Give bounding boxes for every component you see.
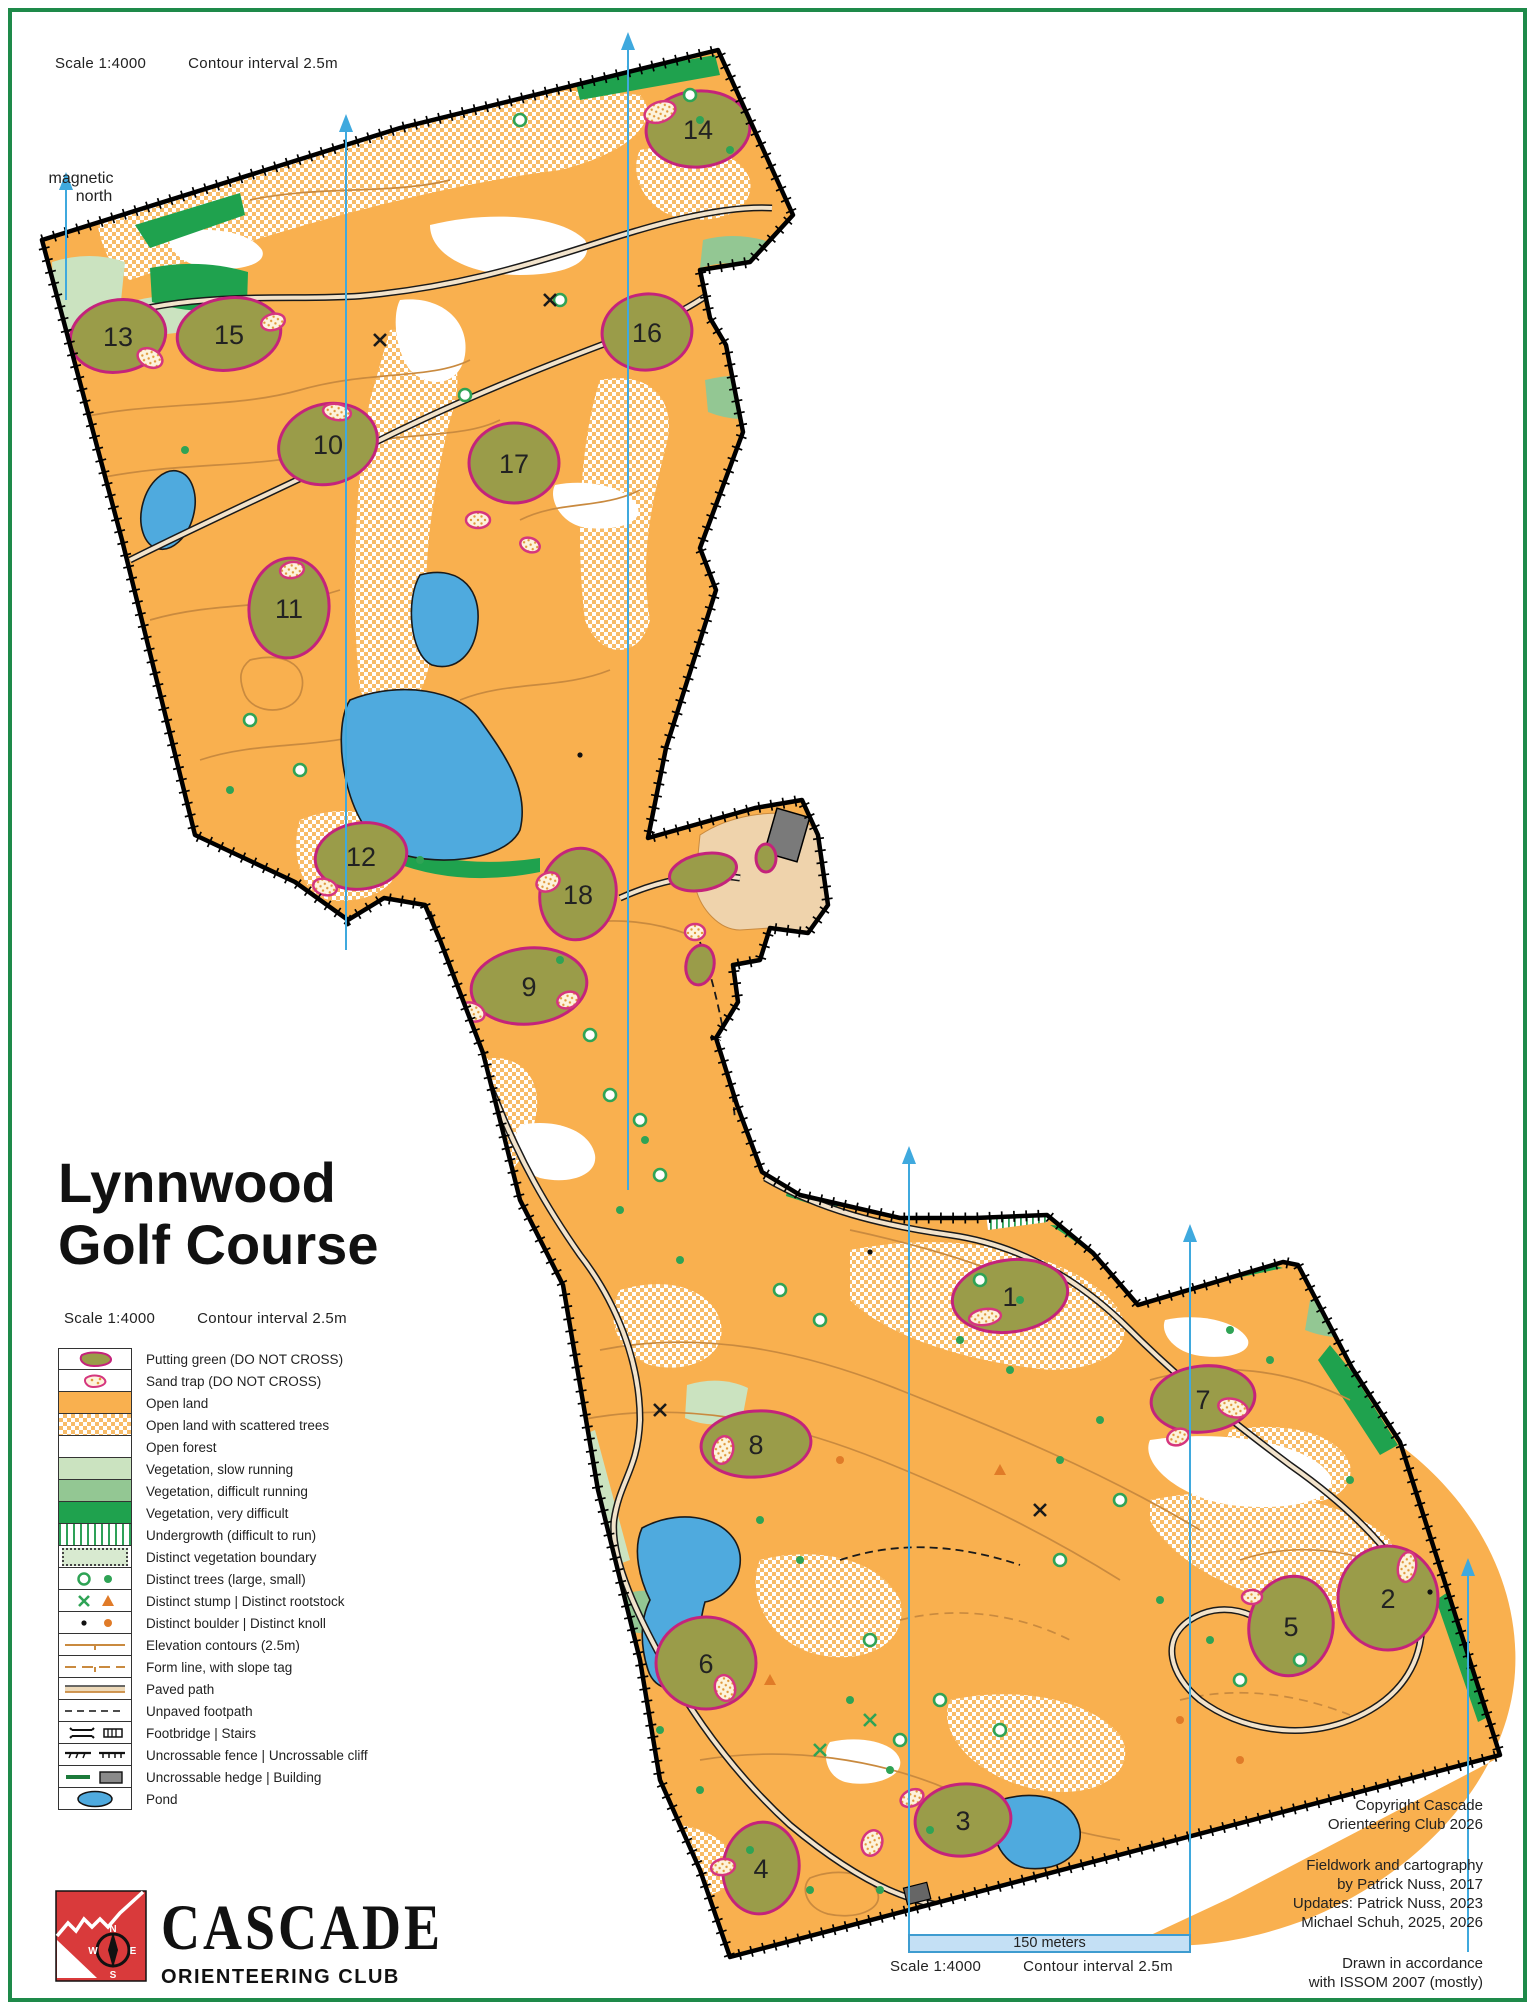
hole-number-8: 8 [748, 1430, 763, 1460]
legend-row-open-forest: Open forest [58, 1436, 368, 1458]
legend-row-veg-boundary: Distinct vegetation boundary [58, 1546, 368, 1568]
club-logo: N W E S CASCADE ORIENTEERING CLUB [55, 1890, 443, 1989]
hole-number-11: 11 [275, 594, 303, 624]
hole-number-18: 18 [563, 880, 593, 910]
credit-fieldwork-line2: by Patrick Nuss, 2017 [1183, 1875, 1483, 1894]
legend-row-form-line: Form line, with slope tag [58, 1656, 368, 1678]
hole-number-12: 12 [346, 842, 376, 872]
scale-text: Scale 1:4000 [55, 55, 146, 72]
scale-bar: 150 meters [908, 1934, 1191, 1953]
veg-very-difficult-swatch [58, 1502, 132, 1524]
undergrowth-swatch [58, 1524, 132, 1546]
legend-row-veg-slow: Vegetation, slow running [58, 1458, 368, 1480]
legend-row-hedge-building: Uncrossable hedge | Building [58, 1766, 368, 1788]
magnetic-north-label: magnetic north [36, 170, 126, 206]
hole-number-4: 4 [753, 1854, 768, 1884]
paved-path-swatch [58, 1678, 132, 1700]
contours-swatch [58, 1634, 132, 1656]
legend-row-stump-rootstock: Distinct stump | Distinct rootstock [58, 1590, 368, 1612]
legend-row-contours: Elevation contours (2.5m) [58, 1634, 368, 1656]
hole-number-6: 6 [698, 1649, 713, 1679]
club-logo-mark: N W E S [55, 1890, 147, 1982]
open-forest-swatch [58, 1436, 132, 1458]
contour-interval-text: Contour interval 2.5m [188, 55, 338, 72]
compass-s: S [110, 1970, 117, 1981]
practice-green [756, 844, 776, 872]
hole-number-5: 5 [1283, 1612, 1298, 1642]
scale-bar-label: 150 meters [1013, 1935, 1086, 1951]
legend-row-distinct-trees: Distinct trees (large, small) [58, 1568, 368, 1590]
footbridge-stairs-swatch [58, 1722, 132, 1744]
legend-row-scattered-trees: Open land with scattered trees [58, 1414, 368, 1436]
legend-row-paved-path: Paved path [58, 1678, 368, 1700]
credit-fieldwork-line1: Fieldwork and cartography [1183, 1856, 1483, 1875]
form-line-swatch [58, 1656, 132, 1678]
credit-fieldwork-line3: Updates: Patrick Nuss, 2023 [1183, 1894, 1483, 1913]
legend-row-putting-green: Putting green (DO NOT CROSS) [58, 1348, 368, 1370]
credit-fieldwork-line4: Michael Schuh, 2025, 2026 [1183, 1913, 1483, 1932]
scattered-trees-swatch [58, 1414, 132, 1436]
compass-n: N [109, 1924, 116, 1935]
hole-number-1: 1 [1002, 1282, 1017, 1312]
legend-row-pond: Pond [58, 1788, 368, 1810]
credits: Copyright Cascade Orienteering Club 2026… [1183, 1796, 1483, 1992]
club-subtitle: ORIENTEERING CLUB [161, 1966, 443, 1989]
credit-copyright-line1: Copyright Cascade [1183, 1796, 1483, 1815]
hole-number-16: 16 [632, 318, 662, 348]
veg-difficult-swatch [58, 1480, 132, 1502]
fence-cliff-swatch [58, 1744, 132, 1766]
compass-w: W [88, 1946, 98, 1957]
legend-row-boulder-knoll: Distinct boulder | Distinct knoll [58, 1612, 368, 1634]
pond-swatch [58, 1788, 132, 1810]
sand-trap-swatch [58, 1370, 132, 1392]
legend-row-footpath: Unpaved footpath [58, 1700, 368, 1722]
hole-number-9: 9 [521, 972, 536, 1002]
hole-number-13: 13 [103, 322, 133, 352]
credit-copyright-line2: Orienteering Club 2026 [1183, 1815, 1483, 1834]
stump-rootstock-swatch [58, 1590, 132, 1612]
scale-note-top: Scale 1:4000Contour interval 2.5m [55, 55, 338, 72]
page-title: Lynnwood Golf Course [58, 1152, 378, 1276]
open-land-swatch [58, 1392, 132, 1414]
hole-number-17: 17 [499, 449, 529, 479]
scale-note-title: Scale 1:4000Contour interval 2.5m [64, 1310, 347, 1327]
legend: Putting green (DO NOT CROSS) Sand trap (… [58, 1348, 368, 1810]
legend-row-fence-cliff: Uncrossable fence | Uncrossable cliff [58, 1744, 368, 1766]
compass-e: E [130, 1946, 137, 1957]
credit-issom-line2: with ISSOM 2007 (mostly) [1183, 1973, 1483, 1992]
legend-row-undergrowth: Undergrowth (difficult to run) [58, 1524, 368, 1546]
legend-row-footbridge-stairs: Footbridge | Stairs [58, 1722, 368, 1744]
legend-row-open-land: Open land [58, 1392, 368, 1414]
pond-upper [411, 572, 478, 666]
club-name: CASCADE [161, 1890, 443, 1964]
veg-slow-swatch [58, 1458, 132, 1480]
distinct-trees-swatch [58, 1568, 132, 1590]
credit-issom-line1: Drawn in accordance [1183, 1954, 1483, 1973]
footpath-swatch [58, 1700, 132, 1722]
veg-boundary-swatch [58, 1546, 132, 1568]
hole-number-3: 3 [955, 1806, 970, 1836]
hole-number-15: 15 [214, 320, 244, 350]
hole-number-10: 10 [313, 430, 343, 460]
scale-note-bottom: Scale 1:4000Contour interval 2.5m [890, 1958, 1173, 1975]
putting-green-swatch [58, 1348, 132, 1370]
legend-row-veg-difficult: Vegetation, difficult running [58, 1480, 368, 1502]
legend-row-sand-trap: Sand trap (DO NOT CROSS) [58, 1370, 368, 1392]
map-page: { "scale_top": {"scale": "Scale 1:4000",… [0, 0, 1535, 2010]
hole-number-14: 14 [683, 115, 713, 145]
boulder-knoll-swatch [58, 1612, 132, 1634]
legend-row-veg-very-difficult: Vegetation, very difficult [58, 1502, 368, 1524]
hole-number-2: 2 [1380, 1584, 1395, 1614]
hole-number-7: 7 [1195, 1385, 1210, 1415]
hedge-building-swatch [58, 1766, 132, 1788]
